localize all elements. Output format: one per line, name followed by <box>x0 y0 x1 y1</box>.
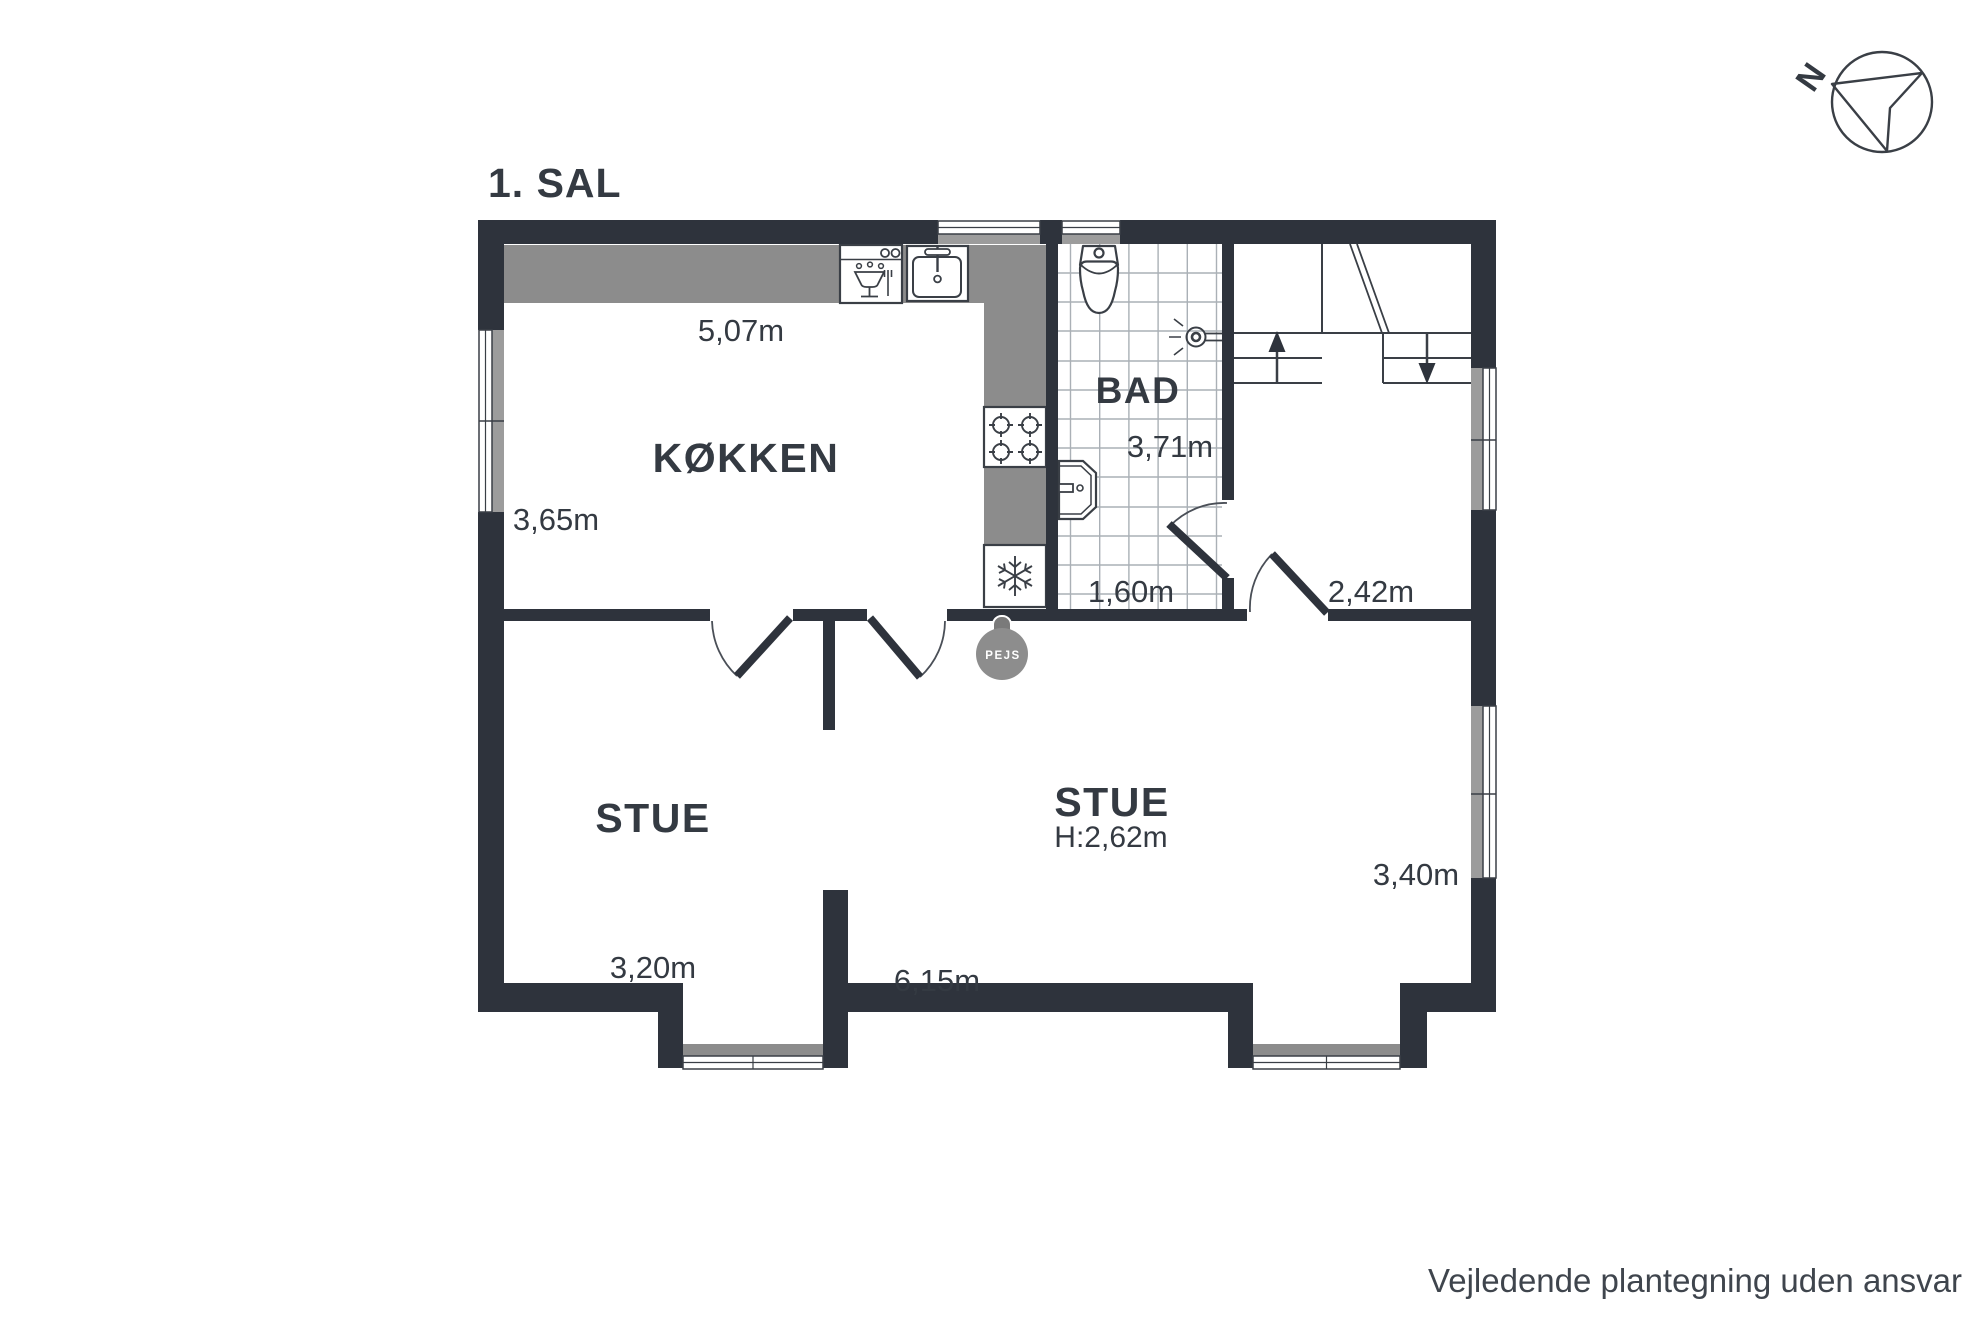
door-bathroom <box>1169 503 1227 578</box>
dim-stue-right-width: 6,15m <box>894 963 980 998</box>
window-right-upper <box>1471 368 1496 510</box>
bay-window-right <box>1253 1044 1400 1069</box>
dim-bath-depth: 3,71m <box>1127 429 1213 464</box>
dim-hall-door: 2,42m <box>1328 574 1414 609</box>
window-right-lower <box>1471 706 1496 878</box>
window-top-bath <box>1062 221 1120 244</box>
fireplace: PEJS <box>976 616 1028 680</box>
freezer-icon <box>984 545 1046 607</box>
dim-kitchen-width: 5,07m <box>698 313 784 348</box>
dishwasher-icon <box>840 245 902 303</box>
compass-needle-icon <box>1832 73 1922 151</box>
wall-lamp-icon <box>1169 319 1222 355</box>
dim-stue-right-depth: 3,40m <box>1373 857 1459 892</box>
staircase <box>1234 244 1471 383</box>
dim-stue-left-width: 3,20m <box>610 950 696 985</box>
bathroom-sink-icon <box>1059 461 1096 519</box>
floor-title: 1. SAL <box>488 160 622 206</box>
room-label-stue-left: STUE <box>595 795 710 841</box>
toilet-icon <box>1080 246 1118 313</box>
window-left-wall <box>479 330 504 512</box>
room-label-bath: BAD <box>1096 370 1181 411</box>
compass: N <box>1789 52 1932 152</box>
room-label-kitchen: KØKKEN <box>653 435 840 481</box>
fireplace-label: PEJS <box>985 650 1020 662</box>
bay-window-left <box>683 1044 823 1069</box>
disclaimer-text: Vejledende plantegning uden ansvar <box>1428 1262 1962 1299</box>
dim-kitchen-depth: 3,65m <box>513 502 599 537</box>
floorplan-page: PEJS 1. SAL KØKKEN 5,07m 3,65m BAD 3,71m… <box>0 0 1984 1323</box>
door-hall-stue <box>1250 554 1327 613</box>
compass-north-label: N <box>1789 56 1834 98</box>
stove-icon <box>984 407 1046 467</box>
window-top-kitchen <box>938 221 1040 244</box>
floorplan-drawing: PEJS 1. SAL KØKKEN 5,07m 3,65m BAD 3,71m… <box>0 0 1984 1323</box>
kitchen-sink-icon <box>907 246 968 301</box>
dim-stue-right-height: H:2,62m <box>1054 821 1167 854</box>
dim-bath-width: 1,60m <box>1088 574 1174 609</box>
room-label-stue-right: STUE <box>1054 779 1169 825</box>
